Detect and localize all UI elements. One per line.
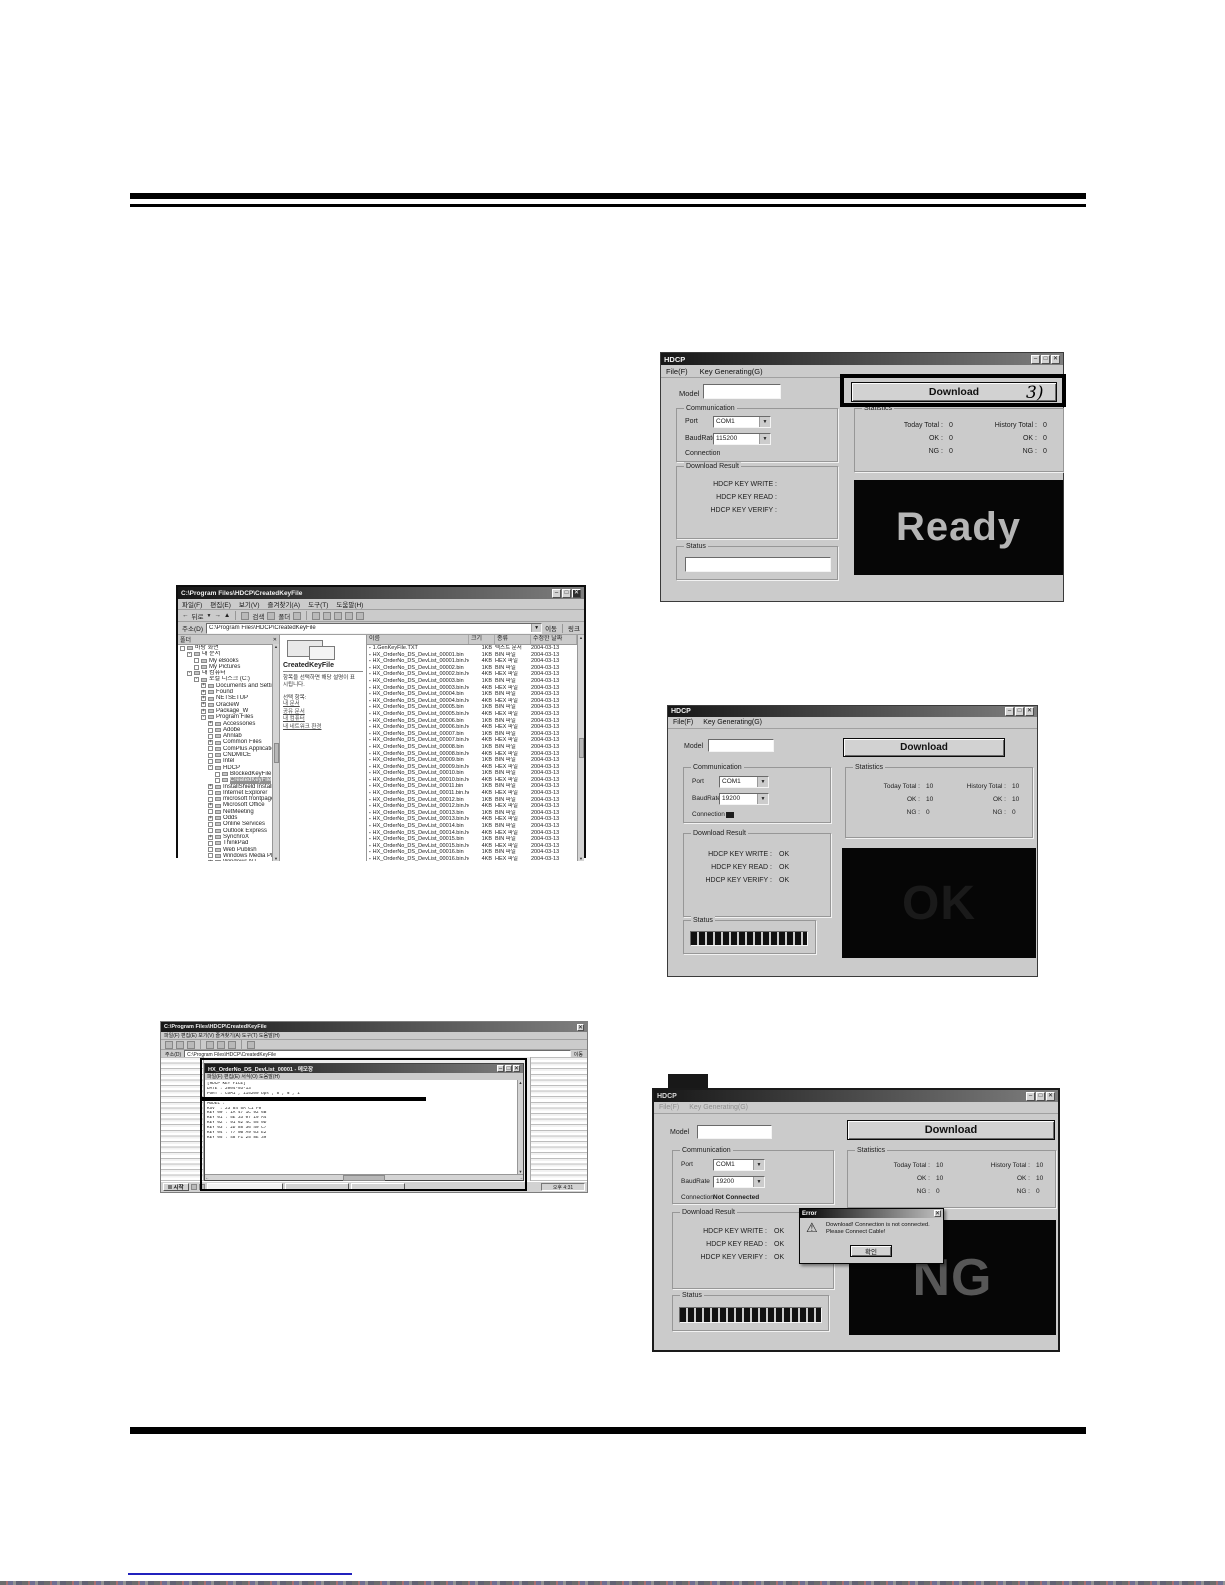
expand-icon[interactable]: + bbox=[208, 784, 213, 789]
title-bar[interactable]: HDCP – □ ✕ bbox=[668, 706, 1037, 717]
write-label: HDCP KEY WRITE : bbox=[677, 481, 777, 488]
file-date: 2004-03-13 bbox=[531, 757, 577, 764]
communication-group: Communication Port COM1▼ BaudRate 115200… bbox=[676, 408, 838, 462]
file-size: 4KB bbox=[469, 737, 495, 744]
file-name: HX_OrderNo_DS_DevList_00003.bin.hex bbox=[373, 685, 469, 692]
error-dialog-title-bar[interactable]: Error ✕ bbox=[800, 1209, 943, 1218]
file-row[interactable]: ▪HX_OrderNo_DS_DevList_00001.bin.hex 4KB… bbox=[367, 658, 577, 665]
file-date: 2004-03-13 bbox=[531, 843, 577, 850]
views-icon[interactable] bbox=[247, 1041, 255, 1049]
baudrate-value: 115200 bbox=[714, 434, 759, 444]
file-row[interactable]: ▪HX_OrderNo_DS_DevList_00006.bin 1KB BIN… bbox=[367, 718, 577, 725]
tree-scrollbar[interactable]: ▲ ▼ bbox=[272, 644, 279, 861]
tree-item-label: Windows NT bbox=[223, 859, 257, 861]
file-row[interactable]: ▪HX_OrderNo_DS_DevList_00007.bin 1KB BIN… bbox=[367, 731, 577, 738]
file-row[interactable]: ▪HX_OrderNo_DS_DevList_00009.bin 1KB BIN… bbox=[367, 757, 577, 764]
file-row[interactable]: ▪HX_OrderNo_DS_DevList_00016.bin.hex 4KB… bbox=[367, 856, 577, 861]
file-type: BIN 파일 bbox=[495, 823, 531, 830]
folder-desc-line2: 시됩니다. bbox=[283, 682, 363, 689]
file-row[interactable]: ▪HX_OrderNo_DS_DevList_00016.bin 1KB BIN… bbox=[367, 849, 577, 856]
expand-icon[interactable]: + bbox=[201, 683, 206, 688]
address-value: C:\Program Files\HDCP\CreatedKeyFile bbox=[207, 625, 531, 631]
info-link[interactable]: 공유 문서 bbox=[283, 709, 363, 717]
file-row[interactable]: ▪HX_OrderNo_DS_DevList_00004.bin 1KB BIN… bbox=[367, 691, 577, 698]
expand-icon[interactable] bbox=[208, 759, 213, 764]
expand-icon[interactable]: + bbox=[208, 740, 213, 745]
file-icon: ▪ bbox=[369, 744, 371, 751]
file-icon: ▪ bbox=[369, 718, 371, 725]
port-label: Port bbox=[692, 778, 704, 785]
expand-icon[interactable] bbox=[215, 772, 220, 777]
background-file-list bbox=[530, 1057, 587, 1183]
port-combo[interactable]: COM1▼ bbox=[713, 1159, 765, 1171]
file-row[interactable]: ▪HX_OrderNo_DS_DevList_00003.bin.hex 4KB… bbox=[367, 685, 577, 692]
folder-icon bbox=[215, 822, 221, 826]
scroll-down-icon[interactable]: ▼ bbox=[579, 856, 583, 861]
background-explorer-title-bar[interactable]: C:\Program Files\HDCP\CreatedKeyFile ✕ bbox=[161, 1022, 587, 1032]
expand-icon[interactable] bbox=[208, 728, 213, 733]
explorer-title-bar[interactable]: C:\Program Files\HDCP\CreatedKeyFile – □… bbox=[178, 587, 584, 599]
history-ng-value: 0 bbox=[1037, 448, 1059, 455]
hdcp-ok-window: HDCP – □ ✕ File(F) Key Generating(G) Mod… bbox=[667, 705, 1038, 977]
download-button[interactable]: Download bbox=[843, 738, 1005, 757]
file-size: 4KB bbox=[469, 790, 495, 797]
back-dropdown-icon[interactable]: ▼ bbox=[206, 613, 211, 619]
explorer-window: C:\Program Files\HDCP\CreatedKeyFile – □… bbox=[176, 585, 586, 858]
background-menu-items[interactable]: 파일(F) 편집(E) 보기(V) 즐겨찾기(A) 도구(T) 도움말(H) bbox=[164, 1032, 280, 1039]
folder-tree-pane: 폴더 ✕ 바탕 화면 - 내 문서 My eBook bbox=[178, 635, 280, 861]
chevron-down-icon[interactable]: ▼ bbox=[753, 1177, 764, 1187]
baudrate-label: BaudRate bbox=[685, 435, 716, 442]
file-size: 1KB bbox=[469, 652, 495, 659]
ready-display: Ready bbox=[854, 480, 1063, 575]
history-ng-label: NG : bbox=[946, 809, 1006, 816]
info-link[interactable]: 내 네트워크 환경 bbox=[283, 724, 363, 732]
expand-icon[interactable]: + bbox=[208, 835, 213, 840]
chevron-down-icon[interactable]: ▼ bbox=[759, 417, 770, 427]
file-type: BIN 파일 bbox=[495, 849, 531, 856]
expand-icon[interactable] bbox=[194, 658, 199, 663]
scan-artifact bbox=[668, 1074, 708, 1088]
file-type: HEX 파일 bbox=[495, 764, 531, 771]
menu-key-generating[interactable]: Key Generating(G) bbox=[700, 367, 763, 376]
file-type: BIN 파일 bbox=[495, 652, 531, 659]
forward-icon[interactable]: → bbox=[214, 612, 221, 619]
download-button[interactable]: Download bbox=[847, 1120, 1055, 1140]
file-row[interactable]: ▪HX_OrderNo_DS_DevList_00014.bin 1KB BIN… bbox=[367, 823, 577, 830]
file-icon: ▪ bbox=[369, 652, 371, 659]
address-input[interactable]: C:\Program Files\HDCP\CreatedKeyFile ▼ bbox=[206, 623, 542, 634]
file-type: HEX 파일 bbox=[495, 856, 531, 861]
file-size: 1KB bbox=[469, 797, 495, 804]
file-type: BIN 파일 bbox=[495, 783, 531, 790]
back-icon[interactable]: ← bbox=[182, 612, 189, 619]
today-ng-value: 0 bbox=[943, 448, 965, 455]
file-row[interactable]: ▪HX_OrderNo_DS_DevList_00014.bin.hex 4KB… bbox=[367, 830, 577, 837]
file-type: HEX 파일 bbox=[495, 698, 531, 705]
file-date: 2004-03-13 bbox=[531, 744, 577, 751]
address-separator bbox=[562, 624, 563, 633]
file-size: 1KB bbox=[469, 823, 495, 830]
quicklaunch-icon[interactable] bbox=[191, 1184, 197, 1190]
menu-file[interactable]: File(F) bbox=[666, 367, 688, 376]
today-ok-value: 10 bbox=[920, 796, 942, 803]
file-name: HX_OrderNo_DS_DevList_00010.bin.hex bbox=[373, 777, 469, 784]
expand-icon[interactable]: + bbox=[208, 860, 213, 861]
download-result-legend: Download Result bbox=[680, 1208, 737, 1217]
expand-icon[interactable] bbox=[208, 822, 213, 827]
file-row[interactable]: ▪HX_OrderNo_DS_DevList_00002.bin.hex 4KB… bbox=[367, 671, 577, 678]
scroll-thumb[interactable] bbox=[579, 738, 584, 758]
editor-annotation-box bbox=[200, 1058, 527, 1191]
model-input[interactable] bbox=[703, 384, 781, 399]
file-date: 2004-03-13 bbox=[531, 783, 577, 790]
system-tray-clock[interactable]: 오후 4:31 bbox=[541, 1183, 585, 1191]
folder-name: CreatedKeyFile bbox=[283, 662, 363, 672]
statistics-group: Statistics Today Total :10 OK :10 NG :0 … bbox=[847, 1150, 1056, 1208]
menu-key-generating[interactable]: Key Generating(G) bbox=[689, 1104, 748, 1111]
port-combo[interactable]: COM1▼ bbox=[713, 416, 771, 428]
menu-key-generating[interactable]: Key Generating(G) bbox=[703, 719, 762, 726]
folders-label[interactable]: 폴더 bbox=[278, 611, 290, 621]
explorer-menu-item[interactable]: 즐겨찾기(A) bbox=[268, 599, 301, 609]
file-row[interactable]: ▪HX_OrderNo_DS_DevList_00012.bin 1KB BIN… bbox=[367, 797, 577, 804]
bottom-rule bbox=[130, 1427, 1086, 1434]
file-size: 4KB bbox=[469, 685, 495, 692]
file-icon: ▪ bbox=[369, 731, 371, 738]
error-dialog-title: Error bbox=[802, 1211, 817, 1217]
folder-icon bbox=[215, 766, 221, 770]
baudrate-value: 19200 bbox=[720, 794, 757, 804]
expand-icon[interactable] bbox=[208, 734, 213, 739]
expand-icon[interactable]: + bbox=[201, 696, 206, 701]
explorer-menu-item[interactable]: 보기(V) bbox=[239, 599, 260, 609]
file-icon: ▪ bbox=[369, 849, 371, 856]
expand-icon[interactable] bbox=[208, 853, 213, 858]
close-icon[interactable]: ✕ bbox=[577, 1024, 584, 1031]
today-total-value: 10 bbox=[920, 783, 942, 790]
today-ng-value: 0 bbox=[920, 809, 942, 816]
file-icon: ▪ bbox=[369, 803, 371, 810]
file-row[interactable]: ▪HX_OrderNo_DS_DevList_00002.bin 1KB BIN… bbox=[367, 665, 577, 672]
scroll-down-icon[interactable]: ▼ bbox=[274, 856, 278, 861]
model-input[interactable] bbox=[697, 1125, 772, 1139]
file-icon: ▪ bbox=[369, 823, 371, 830]
file-type: HEX 파일 bbox=[495, 790, 531, 797]
file-row[interactable]: ▪HX_OrderNo_DS_DevList_00005.bin 1KB BIN… bbox=[367, 704, 577, 711]
expand-icon[interactable]: - bbox=[194, 677, 199, 682]
minimize-icon[interactable]: – bbox=[1005, 707, 1014, 716]
file-icon: ▪ bbox=[369, 836, 371, 843]
background-explorer-title: C:\Program Files\HDCP\CreatedKeyFile bbox=[164, 1024, 267, 1030]
file-rows: ▪1.GenKeyFile.TXT 1KB 텍스트 문서 2004-03-13 … bbox=[367, 645, 577, 861]
today-ok-label: OK : bbox=[850, 1175, 930, 1182]
search-icon[interactable] bbox=[241, 612, 249, 620]
expand-icon[interactable]: + bbox=[201, 690, 206, 695]
folder-icon bbox=[215, 791, 221, 795]
expand-icon[interactable]: + bbox=[208, 803, 213, 808]
explorer-address-bar: 주소(D) C:\Program Files\HDCP\CreatedKeyFi… bbox=[178, 622, 584, 635]
verify-label: HDCP KEY VERIFY : bbox=[684, 877, 772, 884]
expand-icon[interactable] bbox=[208, 828, 213, 833]
folder-info-pane: CreatedKeyFile 항목을 선택하면 해당 설명이 표 시됩니다. 선… bbox=[280, 635, 367, 861]
expand-icon[interactable] bbox=[208, 790, 213, 795]
info-link[interactable]: 내 컴퓨터 bbox=[283, 716, 363, 724]
explorer-menu-item[interactable]: 도움말(H) bbox=[336, 599, 363, 609]
explorer-toolbar: ← 뒤로 ▼ → ▲ 검색 폴더 bbox=[178, 610, 584, 622]
close-folders-icon[interactable]: ✕ bbox=[273, 637, 277, 643]
scroll-thumb[interactable] bbox=[274, 743, 279, 763]
file-row[interactable]: ▪HX_OrderNo_DS_DevList_00015.bin.hex 4KB… bbox=[367, 843, 577, 850]
file-type: BIN 파일 bbox=[495, 797, 531, 804]
chevron-down-icon[interactable]: ▼ bbox=[759, 434, 770, 444]
expand-icon[interactable]: + bbox=[201, 702, 206, 707]
baudrate-combo[interactable]: 115200▼ bbox=[713, 433, 771, 445]
model-input[interactable] bbox=[708, 739, 774, 752]
history-ok-label: OK : bbox=[956, 1175, 1030, 1182]
download-result-group: Download Result HDCP KEY WRITE :OK HDCP … bbox=[683, 833, 831, 917]
chevron-down-icon[interactable]: ▼ bbox=[757, 777, 768, 787]
file-name: HX_OrderNo_DS_DevList_00009.bin.hex bbox=[373, 764, 469, 771]
chevron-down-icon[interactable]: ▼ bbox=[531, 624, 541, 632]
move-icon[interactable] bbox=[312, 612, 320, 620]
menu-file[interactable]: File(F) bbox=[673, 719, 693, 726]
views-icon[interactable] bbox=[356, 612, 364, 620]
baudrate-label: BaudRate bbox=[681, 1178, 710, 1185]
file-date: 2004-03-13 bbox=[531, 737, 577, 744]
history-icon[interactable] bbox=[228, 1041, 236, 1049]
maximize-icon[interactable]: □ bbox=[1036, 1092, 1045, 1101]
background-folder-tree bbox=[161, 1057, 204, 1183]
folders-icon[interactable] bbox=[217, 1041, 225, 1049]
file-row[interactable]: ▪HX_OrderNo_DS_DevList_00008.bin 1KB BIN… bbox=[367, 744, 577, 751]
toolbar-separator bbox=[306, 611, 307, 620]
expand-icon[interactable] bbox=[208, 847, 213, 852]
expand-icon[interactable] bbox=[208, 841, 213, 846]
folders-icon[interactable] bbox=[267, 612, 275, 620]
expand-icon[interactable] bbox=[215, 778, 220, 783]
file-row[interactable]: ▪HX_OrderNo_DS_DevList_00013.bin.hex 4KB… bbox=[367, 816, 577, 823]
statistics-group: Statistics Today Total :0 OK :0 NG :0 Hi… bbox=[854, 408, 1064, 472]
expand-icon[interactable]: + bbox=[201, 709, 206, 714]
file-type: BIN 파일 bbox=[495, 704, 531, 711]
folder-icon bbox=[215, 785, 221, 789]
close-icon[interactable]: ✕ bbox=[1051, 355, 1060, 364]
expand-icon[interactable] bbox=[208, 746, 213, 751]
maximize-icon[interactable]: □ bbox=[1015, 707, 1024, 716]
file-row[interactable]: ▪HX_OrderNo_DS_DevList_00003.bin 1KB BIN… bbox=[367, 678, 577, 685]
close-icon[interactable]: ✕ bbox=[1025, 707, 1034, 716]
file-row[interactable]: ▪HX_OrderNo_DS_DevList_00011.bin 1KB BIN… bbox=[367, 783, 577, 790]
baudrate-combo[interactable]: 19200▼ bbox=[719, 793, 769, 805]
file-row[interactable]: ▪HX_OrderNo_DS_DevList_00004.bin.hex 4KB… bbox=[367, 698, 577, 705]
folder-icon bbox=[215, 797, 221, 801]
write-result-row: HDCP KEY WRITE :OK bbox=[684, 851, 830, 864]
folder-icon bbox=[208, 697, 214, 701]
column-name[interactable]: 이름 bbox=[367, 635, 469, 644]
menu-bar: File(F) Key Generating(G) bbox=[668, 717, 1037, 729]
expand-icon[interactable] bbox=[208, 753, 213, 758]
undo-icon[interactable] bbox=[345, 612, 353, 620]
menu-file[interactable]: File(F) bbox=[659, 1104, 679, 1111]
error-message-line2: Please Connect Cable! bbox=[826, 1229, 930, 1236]
folder-icon bbox=[215, 841, 221, 845]
minimize-icon[interactable]: – bbox=[552, 589, 561, 598]
window-controls: – □ ✕ bbox=[1005, 707, 1034, 716]
links-label[interactable]: 링크 bbox=[568, 623, 580, 633]
chevron-down-icon[interactable]: ▼ bbox=[757, 794, 768, 804]
status-group: Status bbox=[676, 546, 838, 580]
title-bar[interactable]: HDCP – □ ✕ bbox=[661, 353, 1063, 365]
file-name: HX_OrderNo_DS_DevList_00014.bin.hex bbox=[373, 830, 469, 837]
file-size: 4KB bbox=[469, 843, 495, 850]
file-row[interactable]: ▪HX_OrderNo_DS_DevList_00009.bin.hex 4KB… bbox=[367, 764, 577, 771]
file-row[interactable]: ▪HX_OrderNo_DS_DevList_00005.bin.hex 4KB… bbox=[367, 711, 577, 718]
expand-icon[interactable]: + bbox=[208, 816, 213, 821]
folder-icon bbox=[215, 835, 221, 839]
model-label: Model bbox=[670, 1129, 689, 1136]
search-icon[interactable] bbox=[206, 1041, 214, 1049]
file-row[interactable]: ▪HX_OrderNo_DS_DevList_00010.bin 1KB BIN… bbox=[367, 770, 577, 777]
file-row[interactable]: ▪HX_OrderNo_DS_DevList_00008.bin.hex 4KB… bbox=[367, 751, 577, 758]
file-date: 2004-03-13 bbox=[531, 731, 577, 738]
expand-icon[interactable] bbox=[208, 797, 213, 802]
port-combo[interactable]: COM1▼ bbox=[719, 776, 769, 788]
file-name: HX_OrderNo_DS_DevList_00006.bin.hex bbox=[373, 724, 469, 731]
expand-icon[interactable]: + bbox=[208, 721, 213, 726]
history-ng-label: NG : bbox=[956, 1188, 1030, 1195]
title-bar[interactable]: HDCP – □ ✕ bbox=[654, 1090, 1058, 1102]
expand-icon[interactable]: - bbox=[187, 671, 192, 676]
close-icon[interactable]: ✕ bbox=[1046, 1092, 1055, 1101]
file-row[interactable]: ▪1.GenKeyFile.TXT 1KB 텍스트 문서 2004-03-13 bbox=[367, 645, 577, 652]
scroll-up-icon[interactable]: ▲ bbox=[579, 635, 583, 640]
file-name: 1.GenKeyFile.TXT bbox=[373, 645, 418, 652]
file-icon: ▪ bbox=[369, 757, 371, 764]
file-icon: ▪ bbox=[369, 816, 371, 823]
forward-icon[interactable] bbox=[176, 1041, 184, 1049]
expand-icon[interactable] bbox=[208, 809, 213, 814]
download-result-group: Download Result HDCP KEY WRITE : HDCP KE… bbox=[676, 466, 838, 539]
file-icon: ▪ bbox=[369, 678, 371, 685]
file-name: HX_OrderNo_DS_DevList_00001.bin.hex bbox=[373, 658, 469, 665]
file-icon: ▪ bbox=[369, 783, 371, 790]
file-row[interactable]: ▪HX_OrderNo_DS_DevList_00001.bin 1KB BIN… bbox=[367, 652, 577, 659]
file-size: 1KB bbox=[469, 783, 495, 790]
minimize-icon[interactable]: – bbox=[1031, 355, 1040, 364]
list-scrollbar[interactable]: ▲ ▼ bbox=[577, 635, 584, 861]
file-name: HX_OrderNo_DS_DevList_00012.bin bbox=[373, 797, 464, 804]
search-label[interactable]: 검색 bbox=[252, 611, 264, 621]
file-name: HX_OrderNo_DS_DevList_00005.bin bbox=[373, 704, 464, 711]
file-size: 4KB bbox=[469, 777, 495, 784]
file-date: 2004-03-13 bbox=[531, 678, 577, 685]
history-total-label: History Total : bbox=[956, 1162, 1030, 1169]
up-icon[interactable]: ▲ bbox=[224, 612, 230, 619]
column-type[interactable]: 종류 bbox=[495, 635, 531, 644]
file-row[interactable]: ▪HX_OrderNo_DS_DevList_00011.bin.hex 4KB… bbox=[367, 790, 577, 797]
start-button[interactable]: 시작 bbox=[163, 1183, 189, 1191]
explorer-menu-item[interactable]: 도구(T) bbox=[308, 599, 328, 609]
minimize-icon[interactable]: – bbox=[1026, 1092, 1035, 1101]
tree-item[interactable]: + Windows NT bbox=[178, 859, 279, 861]
file-list-header[interactable]: 이름 크기 종류 수정한 날짜 bbox=[367, 635, 577, 645]
folder-icon bbox=[215, 747, 221, 751]
close-icon[interactable]: ✕ bbox=[934, 1210, 941, 1217]
expand-icon[interactable] bbox=[180, 646, 185, 651]
baudrate-combo[interactable]: 19200▼ bbox=[713, 1176, 765, 1188]
write-label: HDCP KEY WRITE : bbox=[684, 851, 772, 858]
chevron-down-icon[interactable]: ▼ bbox=[753, 1160, 764, 1170]
expand-icon[interactable] bbox=[194, 665, 199, 670]
file-date: 2004-03-13 bbox=[531, 711, 577, 718]
file-row[interactable]: ▪HX_OrderNo_DS_DevList_00012.bin.hex 4KB… bbox=[367, 803, 577, 810]
file-row[interactable]: ▪HX_OrderNo_DS_DevList_00010.bin.hex 4KB… bbox=[367, 777, 577, 784]
file-row[interactable]: ▪HX_OrderNo_DS_DevList_00013.bin 1KB BIN… bbox=[367, 810, 577, 817]
file-size: 4KB bbox=[469, 803, 495, 810]
explorer-menu-item[interactable]: 파일(F) bbox=[182, 599, 202, 609]
ok-button[interactable]: 확인 bbox=[850, 1245, 892, 1257]
info-links: 내 문서공유 문서내 컴퓨터내 네트워크 환경 bbox=[283, 701, 363, 731]
file-type: HEX 파일 bbox=[495, 685, 531, 692]
file-name: HX_OrderNo_DS_DevList_00016.bin.hex bbox=[373, 856, 469, 861]
column-date[interactable]: 수정한 날짜 bbox=[531, 635, 577, 644]
history-ng-value: 0 bbox=[1006, 809, 1028, 816]
back-icon[interactable] bbox=[165, 1041, 173, 1049]
file-row[interactable]: ▪HX_OrderNo_DS_DevList_00006.bin.hex 4KB… bbox=[367, 724, 577, 731]
expand-icon[interactable]: - bbox=[201, 715, 206, 720]
file-row[interactable]: ▪HX_OrderNo_DS_DevList_00007.bin.hex 4KB… bbox=[367, 737, 577, 744]
column-size[interactable]: 크기 bbox=[469, 635, 495, 644]
folder-icon bbox=[201, 665, 207, 669]
up-icon[interactable] bbox=[187, 1041, 195, 1049]
write-value: OK bbox=[772, 851, 789, 858]
file-icon: ▪ bbox=[369, 685, 371, 692]
step3-annotation-number: 3) bbox=[1026, 383, 1043, 403]
history-stats: History Total :10 OK :10 NG :0 bbox=[946, 783, 1028, 822]
copy-icon[interactable] bbox=[323, 612, 331, 620]
editor-annotation-line bbox=[200, 1097, 426, 1101]
maximize-icon[interactable]: □ bbox=[562, 589, 571, 598]
info-link[interactable]: 내 문서 bbox=[283, 701, 363, 709]
file-icon: ▪ bbox=[369, 658, 371, 665]
file-icon: ▪ bbox=[369, 856, 371, 861]
top-rule-thick bbox=[130, 193, 1086, 199]
file-date: 2004-03-13 bbox=[531, 704, 577, 711]
scroll-up-icon[interactable]: ▲ bbox=[274, 644, 278, 649]
history-icon[interactable] bbox=[293, 612, 301, 620]
expand-icon[interactable]: - bbox=[187, 652, 192, 657]
file-size: 1KB bbox=[469, 770, 495, 777]
explorer-menu-item[interactable]: 편집(E) bbox=[210, 599, 231, 609]
go-button[interactable]: 이동 bbox=[545, 623, 557, 633]
port-value: COM1 bbox=[720, 777, 757, 787]
file-size: 1KB bbox=[469, 665, 495, 672]
history-stats: History Total :10 OK :10 NG :0 bbox=[956, 1162, 1052, 1201]
error-message: Download! Connection is not connected. P… bbox=[826, 1222, 930, 1236]
maximize-icon[interactable]: □ bbox=[1041, 355, 1050, 364]
today-ok-label: OK : bbox=[848, 796, 920, 803]
close-icon[interactable]: ✕ bbox=[572, 589, 581, 598]
delete-icon[interactable] bbox=[334, 612, 342, 620]
file-row[interactable]: ▪HX_OrderNo_DS_DevList_00015.bin 1KB BIN… bbox=[367, 836, 577, 843]
download-result-legend: Download Result bbox=[684, 462, 741, 471]
expand-icon[interactable]: - bbox=[208, 765, 213, 770]
file-name: HX_OrderNo_DS_DevList_00013.bin.hex bbox=[373, 816, 469, 823]
back-label[interactable]: 뒤로 bbox=[192, 611, 204, 621]
today-ok-label: OK : bbox=[859, 435, 943, 442]
file-name: HX_OrderNo_DS_DevList_00013.bin bbox=[373, 810, 464, 817]
